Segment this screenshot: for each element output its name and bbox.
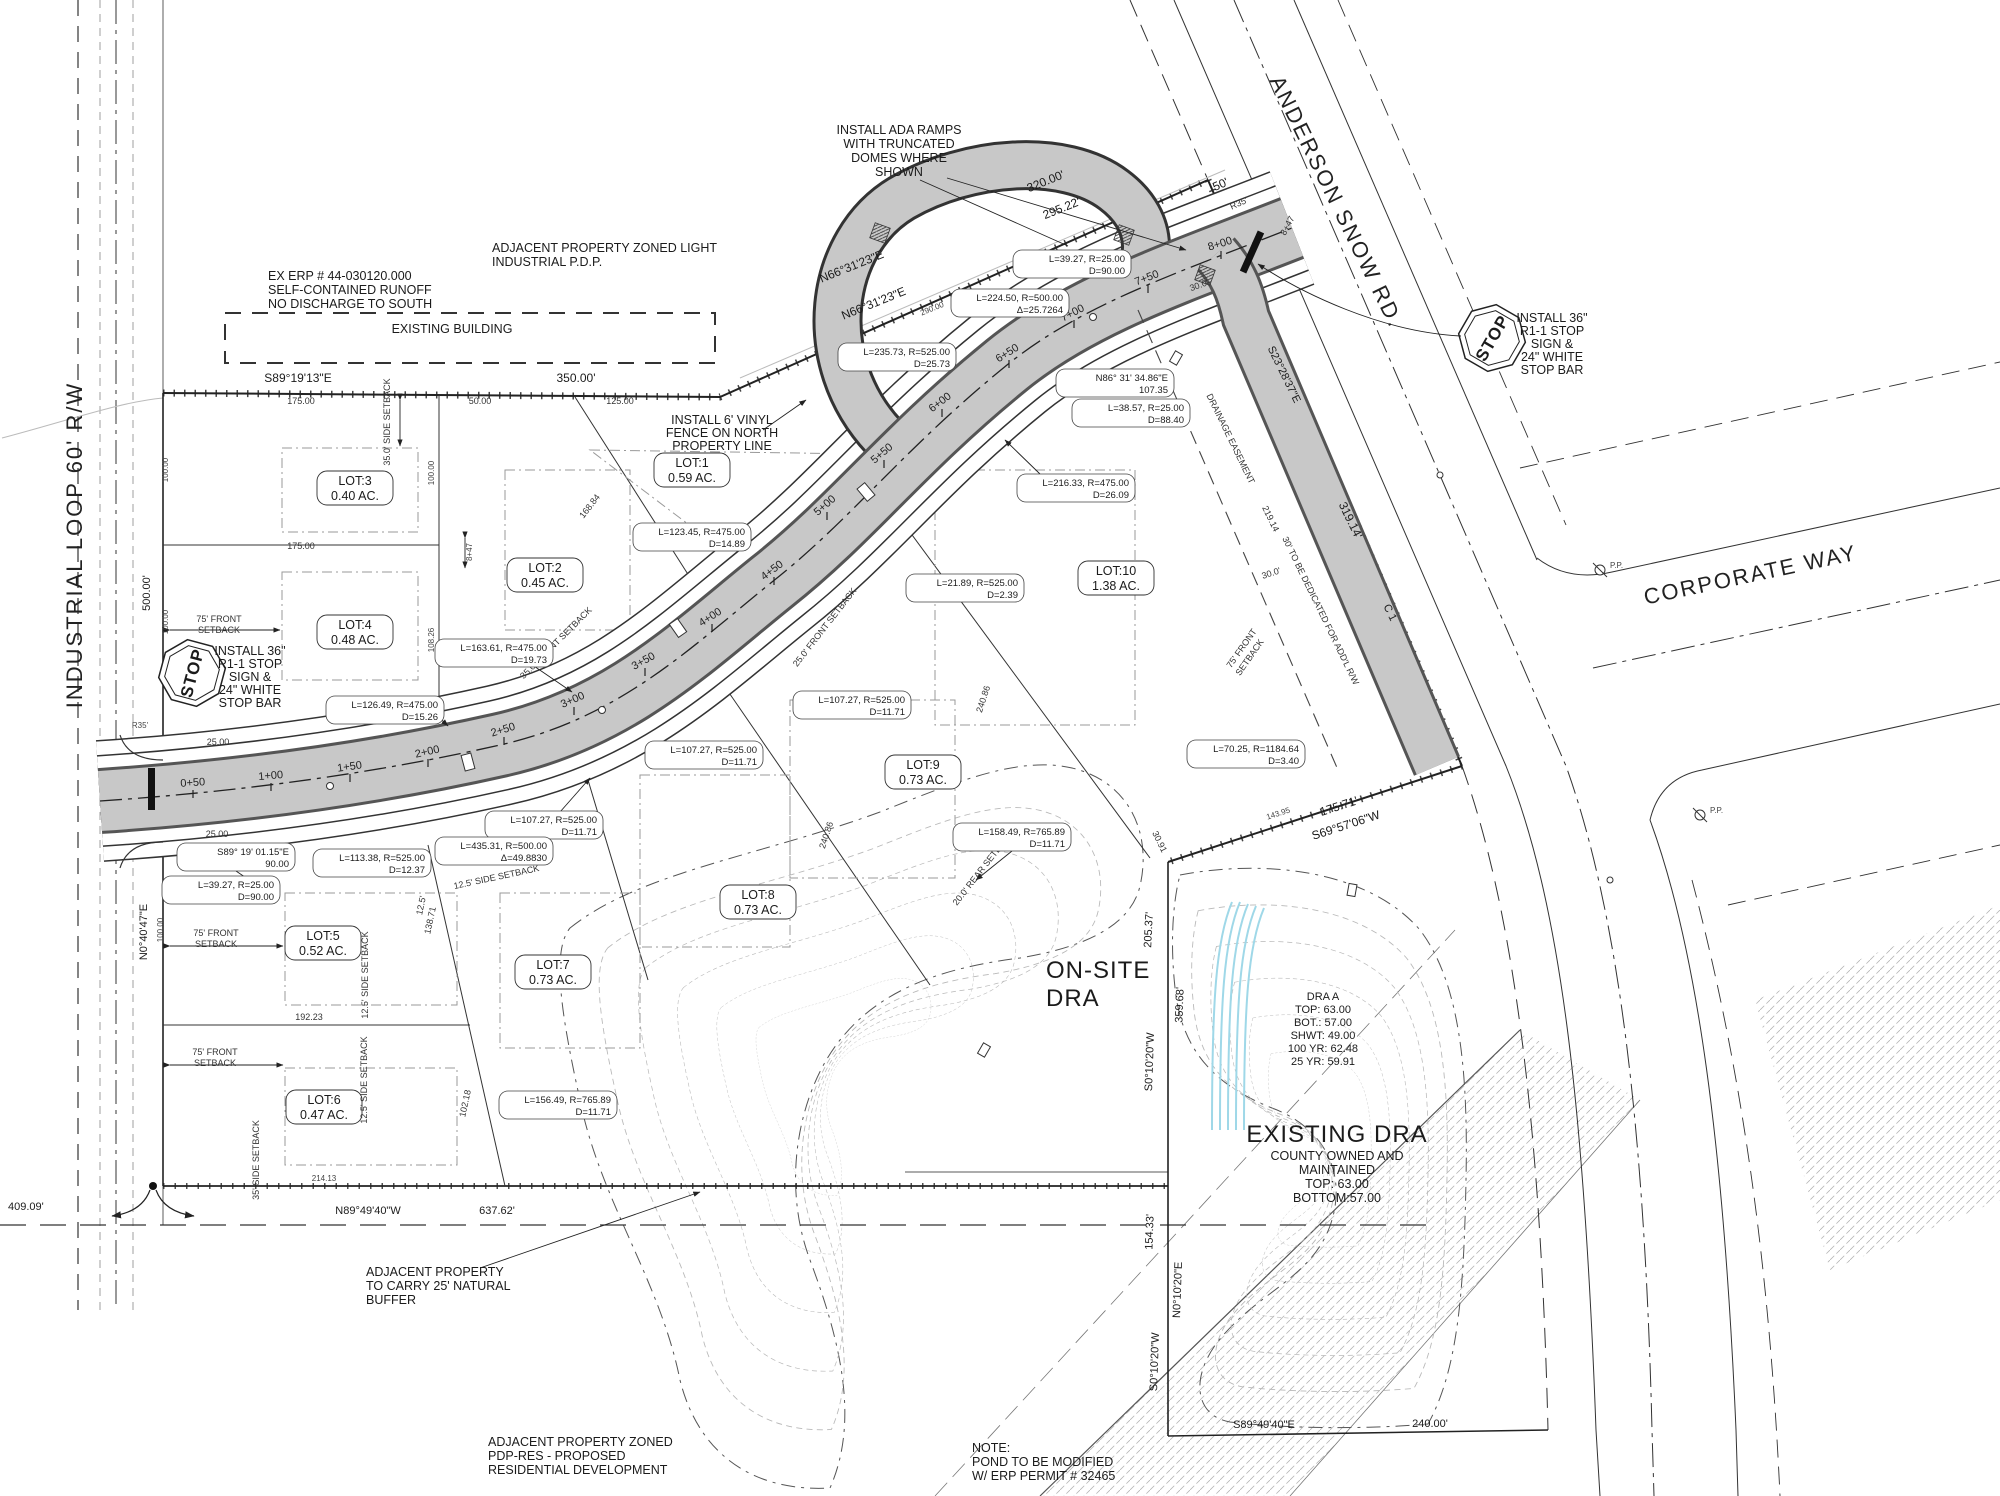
erp-note: NO DISCHARGE TO SOUTH — [268, 297, 432, 311]
dim-label: 100.00 — [161, 457, 170, 482]
centerline-point-icon — [1607, 877, 1613, 883]
curve-callout: L=216.33, R=475.00D=26.09 — [1017, 474, 1135, 502]
svg-text:D=25.73: D=25.73 — [914, 359, 950, 370]
dra-a-data: 100 YR: 62.48 — [1288, 1043, 1358, 1055]
svg-text:L=39.27, R=25.00: L=39.27, R=25.00 — [198, 880, 274, 891]
existing-dra-data: COUNTY OWNED AND — [1270, 1149, 1403, 1163]
drainage-easement-label: DRAINAGE EASEMENT — [1204, 392, 1257, 486]
vinyl-fence-note: INSTALL 6' VINYL — [671, 413, 773, 427]
site-plan-sheet: STOP STOP P.P. P.P. INDUSTRIAL LOOP 60' … — [0, 0, 2000, 1496]
curve-callout: L=435.31, R=500.00Δ=49.8830 — [435, 837, 553, 865]
dim-label: 8+47 — [465, 542, 474, 561]
dim-label: 30.0' — [1260, 565, 1282, 581]
stop-sign-note: 24" WHITE — [1521, 350, 1583, 364]
dim-label: 143.95 — [1265, 805, 1292, 821]
site-plan-drawing: STOP STOP P.P. P.P. INDUSTRIAL LOOP 60' … — [0, 0, 2000, 1496]
svg-text:107.35: 107.35 — [1139, 385, 1168, 396]
curve-callout: L=123.45, R=475.00D=14.89 — [633, 523, 751, 551]
bearing-label: N0°40'47"E — [138, 904, 150, 960]
bearing-label: S89°49'40"E — [1233, 1419, 1295, 1431]
stop-sign-note: SIGN & — [1531, 337, 1574, 351]
dra-a-data: TOP: 63.00 — [1295, 1004, 1351, 1016]
dim-label: 205.37' — [1142, 912, 1156, 948]
svg-text:Δ=49.8830: Δ=49.8830 — [501, 853, 547, 864]
svg-text:L=163.61, R=475.00: L=163.61, R=475.00 — [460, 643, 547, 654]
lot-name: LOT:5 — [306, 929, 339, 943]
ada-note: SHOWN — [875, 165, 923, 179]
curve-callout: L=107.27, R=525.00D=11.71 — [485, 811, 603, 839]
existing-building-outline — [225, 313, 715, 363]
pdp-note: ADJACENT PROPERTY ZONED — [488, 1435, 673, 1449]
dim-label: 25.00 — [207, 737, 230, 747]
setback-label: 75' FRONT — [192, 1047, 238, 1057]
dim-label: 30.91 — [1150, 829, 1169, 854]
lot-name: LOT:7 — [536, 958, 569, 972]
manhole-icon — [599, 707, 606, 714]
adjacent-zoning-note: INDUSTRIAL P.D.P. — [492, 255, 602, 269]
intersection-node — [112, 1182, 194, 1216]
svg-text:D=2.39: D=2.39 — [987, 590, 1018, 601]
dim-label: 125.00 — [606, 396, 634, 406]
dim-label: 175.00 — [287, 541, 315, 551]
lot-area: 0.52 AC. — [299, 944, 347, 958]
pond-note: POND TO BE MODIFIED — [972, 1455, 1113, 1469]
ada-note: DOMES WHERE — [851, 151, 947, 165]
lot-area: 0.73 AC. — [734, 903, 782, 917]
curve-callout: L=113.38, R=525.00D=12.37 — [313, 849, 431, 877]
curve-callout: L=158.49, R=765.89D=11.71 — [953, 823, 1071, 851]
svg-text:D=26.09: D=26.09 — [1093, 490, 1129, 501]
svg-text:D=90.00: D=90.00 — [238, 892, 274, 903]
svg-text:L=39.27, R=25.00: L=39.27, R=25.00 — [1049, 254, 1125, 265]
svg-text:D=19.73: D=19.73 — [511, 655, 547, 666]
existing-dra-data: MAINTAINED — [1299, 1163, 1375, 1177]
svg-text:D=11.71: D=11.71 — [722, 757, 757, 768]
dim-label: 295.22' — [1041, 194, 1082, 222]
svg-text:L=435.31, R=500.00: L=435.31, R=500.00 — [460, 841, 547, 852]
lot-name: LOT:10 — [1096, 564, 1136, 578]
lot-area: 0.73 AC. — [899, 773, 947, 787]
svg-text:D=11.71: D=11.71 — [870, 707, 905, 718]
bearing-label: S0°10'20"W — [1148, 1332, 1162, 1392]
dim-label: 175.00 — [287, 396, 315, 406]
svg-text:L=224.50, R=500.00: L=224.50, R=500.00 — [976, 293, 1063, 304]
pdp-note: RESIDENTIAL DEVELOPMENT — [488, 1463, 668, 1477]
curve-callout: L=38.57, R=25.00D=88.40 — [1072, 399, 1190, 427]
stop-sign-note: 24" WHITE — [219, 683, 281, 697]
dim-label: 214.13 — [312, 1174, 337, 1183]
dim-label: 359.68' — [1173, 987, 1186, 1023]
pp-label: P.P. — [1710, 806, 1723, 815]
curve-callout: L=39.27, R=25.00D=90.00 — [162, 876, 280, 904]
curve-callout: L=126.49, R=475.00D=15.26 — [326, 696, 444, 724]
curve-callout: S89° 19' 01.15"E90.00 — [177, 843, 295, 871]
pp-label: P.P. — [1610, 561, 1623, 570]
buffer-note: ADJACENT PROPERTY — [366, 1265, 504, 1279]
dim-label: 100.00 — [156, 917, 165, 942]
lot-area: 1.38 AC. — [1092, 579, 1140, 593]
svg-text:D=14.89: D=14.89 — [709, 539, 745, 550]
onsite-dra-label: DRA — [1046, 985, 1100, 1012]
existing-dra-data: TOP: 63.00 — [1305, 1177, 1369, 1191]
svg-text:L=158.49, R=765.89: L=158.49, R=765.89 — [978, 827, 1065, 838]
erp-note: EX ERP # 44-030120.000 — [268, 269, 412, 283]
dra-a-data: BOT.: 57.00 — [1294, 1017, 1352, 1029]
lot-area: 0.73 AC. — [529, 973, 577, 987]
svg-text:D=88.40: D=88.40 — [1148, 415, 1184, 426]
curve-callout: N86° 31' 34.86"E107.35 — [1056, 369, 1174, 397]
station-label: 1+00 — [258, 769, 284, 783]
svg-text:D=11.71: D=11.71 — [1030, 839, 1065, 850]
bearing-label: N0°10'20"E — [1171, 1262, 1185, 1319]
setback-label: 75' FRONT — [196, 614, 242, 624]
dra-a-data: SHWT: 49.00 — [1291, 1030, 1356, 1042]
svg-text:Δ=25.7264: Δ=25.7264 — [1017, 305, 1063, 316]
setback-label: 12.5' SIDE SETBACK — [453, 863, 540, 891]
lot-area: 0.47 AC. — [300, 1108, 348, 1122]
existing-building-label: EXISTING BUILDING — [392, 322, 513, 336]
stop-sign-note: INSTALL 36" — [1516, 311, 1587, 325]
dim-label: 100.00 — [161, 609, 170, 634]
vinyl-fence-note: PROPERTY LINE — [672, 439, 772, 453]
setback-label: 12.5' SIDE SETBACK — [360, 931, 370, 1018]
ada-note: INSTALL ADA RAMPS — [836, 123, 961, 137]
vinyl-fence-note: FENCE ON NORTH — [666, 426, 778, 440]
manhole-icon — [327, 783, 334, 790]
corporate-way-road — [1520, 362, 2000, 905]
curve-callout: L=39.27, R=25.00D=90.00 — [1013, 250, 1131, 278]
setback-label: 75' FRONT — [193, 928, 239, 938]
curve-callout: L=107.27, R=525.00D=11.71 — [645, 741, 763, 769]
lot-name: LOT:3 — [338, 474, 371, 488]
station-label: 0+50 — [180, 776, 206, 790]
stop-sign-note: R1-1 STOP — [1520, 324, 1584, 338]
dim-label: 350.00' — [557, 371, 596, 385]
stop-sign-note: R1-1 STOP — [218, 657, 282, 671]
dim-label: 50.00 — [469, 396, 492, 406]
erp-note: SELF-CONTAINED RUNOFF — [268, 283, 432, 297]
curve-callout: L=21.89, R=525.00D=2.39 — [906, 574, 1024, 602]
dim-label: 409.09' — [8, 1201, 44, 1213]
curve-callout: L=107.27, R=525.00D=11.71 — [793, 691, 911, 719]
dim-label: 102.18 — [457, 1089, 473, 1118]
setback-label: SETBACK — [194, 1058, 236, 1068]
adjacent-zoning-note: ADJACENT PROPERTY ZONED LIGHT — [492, 241, 717, 255]
svg-text:L=70.25, R=1184.64: L=70.25, R=1184.64 — [1213, 744, 1299, 755]
lot-area: 0.45 AC. — [521, 576, 569, 590]
onsite-dra-label: ON-SITE — [1046, 957, 1150, 984]
curve-callout: L=235.73, R=525.00D=25.73 — [838, 343, 956, 371]
centerline-point-icon — [1437, 472, 1443, 478]
svg-text:L=107.27, R=525.00: L=107.27, R=525.00 — [670, 745, 757, 756]
svg-text:L=216.33, R=475.00: L=216.33, R=475.00 — [1042, 478, 1129, 489]
pond-note: W/ ERP PERMIT # 32465 — [972, 1469, 1115, 1483]
lot-name: LOT:1 — [675, 456, 708, 470]
bearing-label: N89°49'40"W — [335, 1205, 401, 1217]
lot-name: LOT:2 — [528, 561, 561, 575]
dim-label: 25.00 — [206, 829, 229, 839]
manhole-icon — [1090, 314, 1097, 321]
svg-text:D=90.00: D=90.00 — [1089, 266, 1125, 277]
svg-text:L=126.49, R=475.00: L=126.49, R=475.00 — [351, 700, 438, 711]
buffer-note: TO CARRY 25' NATURAL — [366, 1279, 511, 1293]
stop-sign-note: SIGN & — [229, 670, 272, 684]
curve-callout: L=70.25, R=1184.64D=3.40 — [1187, 740, 1305, 768]
bearing-label: S0°10'20"W — [1143, 1032, 1157, 1092]
setback-label: 12.5' SIDE SETBACK — [359, 1036, 369, 1123]
dim-label: 168.84 — [577, 492, 602, 520]
svg-text:S89° 19' 01.15"E: S89° 19' 01.15"E — [217, 847, 289, 858]
lot-name: LOT:4 — [338, 618, 371, 632]
setback-label: 35' SIDE SETBACK — [251, 1120, 261, 1200]
stop-sign-note: STOP BAR — [1521, 363, 1584, 377]
lot-name: LOT:6 — [307, 1093, 340, 1107]
svg-text:D=11.71: D=11.71 — [562, 827, 597, 838]
svg-text:L=107.27, R=525.00: L=107.27, R=525.00 — [510, 815, 597, 826]
setback-label: SETBACK — [198, 625, 240, 635]
industrial-loop-label: INDUSTRIAL LOOP 60' R/W — [62, 382, 87, 709]
dim-label: 219.14 — [1260, 504, 1281, 533]
ada-note: WITH TRUNCATED — [843, 137, 954, 151]
setback-label: 35.0' SIDE SETBACK — [382, 378, 392, 465]
curve-callout: L=224.50, R=500.00Δ=25.7264 — [951, 289, 1069, 317]
svg-text:D=15.26: D=15.26 — [402, 712, 438, 723]
curve-callout: L=163.61, R=475.00D=19.73 — [435, 639, 553, 667]
existing-dra-label: EXISTING DRA — [1246, 1121, 1427, 1148]
pdp-note: PDP-RES - PROPOSED — [488, 1449, 626, 1463]
lot-area: 0.59 AC. — [668, 471, 716, 485]
setback-label: SETBACK — [195, 939, 237, 949]
stop-sign-note: INSTALL 36" — [214, 644, 285, 658]
svg-text:L=107.27, R=525.00: L=107.27, R=525.00 — [818, 695, 905, 706]
lot-area: 0.48 AC. — [331, 633, 379, 647]
dim-label: 100.00 — [427, 460, 436, 485]
dra-a-data: 25 YR: 59.91 — [1291, 1056, 1355, 1068]
svg-text:L=156.49, R=765.89: L=156.49, R=765.89 — [524, 1095, 611, 1106]
onsite-dra-contours — [560, 765, 1143, 1488]
svg-text:L=38.57, R=25.00: L=38.57, R=25.00 — [1108, 403, 1184, 414]
svg-text:L=235.73, R=525.00: L=235.73, R=525.00 — [863, 347, 950, 358]
svg-text:D=11.71: D=11.71 — [576, 1107, 611, 1118]
pond-note: NOTE: — [972, 1441, 1010, 1455]
svg-text:90.00: 90.00 — [265, 859, 289, 870]
existing-dra-data: BOTTOM:57.00 — [1293, 1191, 1381, 1205]
curve-callout: L=156.49, R=765.89D=11.71 — [499, 1091, 617, 1119]
dim-label: 240.86 — [974, 684, 992, 713]
dim-label: S89°19'13"E — [264, 371, 331, 385]
corporate-way-label: CORPORATE WAY — [1641, 540, 1859, 610]
svg-text:D=12.37: D=12.37 — [389, 865, 425, 876]
svg-text:L=123.45, R=475.00: L=123.45, R=475.00 — [658, 527, 745, 538]
stop-sign-note: STOP BAR — [219, 696, 282, 710]
lot-area: 0.40 AC. — [331, 489, 379, 503]
dim-label: 154.33' — [1143, 1214, 1156, 1250]
dra-a-data: DRA A — [1307, 991, 1340, 1003]
dim-label: 637.62' — [479, 1205, 515, 1217]
dim-label: 500.00' — [141, 575, 153, 611]
svg-text:L=21.89, R=525.00: L=21.89, R=525.00 — [937, 578, 1018, 589]
dim-label: R35' — [132, 721, 149, 730]
svg-text:L=113.38, R=525.00: L=113.38, R=525.00 — [339, 853, 425, 864]
lot-name: LOT:9 — [906, 758, 939, 772]
dim-label: 192.23 — [295, 1012, 323, 1022]
lot-name: LOT:8 — [741, 888, 774, 902]
svg-text:D=3.40: D=3.40 — [1268, 756, 1299, 767]
svg-text:N86° 31' 34.86"E: N86° 31' 34.86"E — [1096, 373, 1168, 384]
dim-label: 240.00' — [1412, 1418, 1448, 1430]
buffer-note: BUFFER — [366, 1293, 416, 1307]
